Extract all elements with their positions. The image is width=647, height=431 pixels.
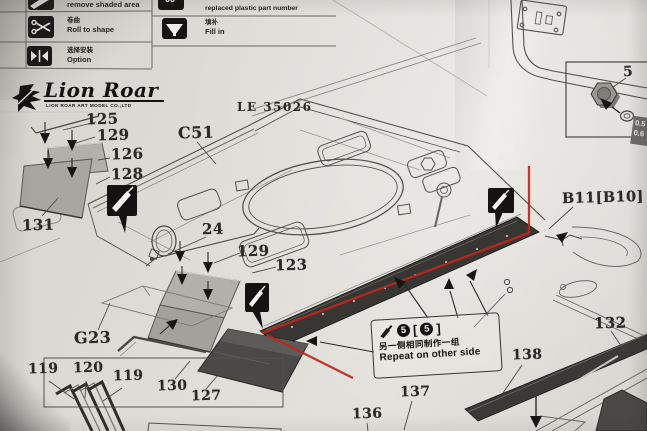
brand-rule bbox=[44, 100, 164, 102]
legend-row-remove-shaded: remove shaded area bbox=[67, 0, 140, 9]
turret-ring bbox=[235, 149, 410, 245]
option-arrows-icon bbox=[27, 46, 52, 66]
legend-en: replaced plastic part number bbox=[205, 5, 298, 12]
shaded-area-icon bbox=[28, 0, 54, 10]
part-label-c51: C51 bbox=[178, 123, 215, 143]
legend-row-replaced-number: replaced plastic part number bbox=[205, 0, 300, 16]
fill-in-icon bbox=[162, 18, 187, 39]
quantity-badge: 5 bbox=[397, 324, 411, 338]
legend-en: Roll to shape bbox=[67, 25, 114, 34]
scissors-icon bbox=[28, 16, 54, 38]
lion-roar-logo-icon bbox=[12, 84, 41, 112]
part-label-127: 127 bbox=[191, 388, 222, 405]
legend-en: remove shaded area bbox=[67, 0, 140, 9]
part-label-137: 137 bbox=[400, 384, 431, 401]
part-label-g23: G23 bbox=[74, 328, 112, 348]
sheet-code: LE 35026 bbox=[237, 100, 313, 114]
part-label-24: 24 bbox=[202, 220, 224, 239]
legend-row-fill-in: 填补 Fill in bbox=[205, 19, 225, 37]
part-label-132: 132 bbox=[594, 314, 627, 333]
legend-zh: 填补 bbox=[205, 19, 225, 27]
part-label-123: 123 bbox=[275, 256, 308, 275]
part-label-129b: 129 bbox=[237, 242, 270, 261]
part-label-5: 5 bbox=[623, 64, 634, 80]
part-label-119b: 119 bbox=[113, 368, 144, 385]
drill-size-badge: 0.5 0.6 bbox=[630, 116, 647, 146]
instruction-sheet-photo: remove shaded area 卷曲 Roll to shape 选择安装… bbox=[0, 0, 647, 431]
part-label-128: 128 bbox=[111, 165, 144, 184]
legend-en: Option bbox=[67, 55, 93, 64]
brand-subtitle: LION ROAR ART MODEL CO.,LTD bbox=[46, 103, 132, 108]
part-label-131: 131 bbox=[22, 216, 55, 235]
part-label-130: 130 bbox=[157, 378, 188, 395]
glue-icon bbox=[378, 323, 395, 340]
part-label-120: 120 bbox=[73, 360, 104, 377]
part-label-136: 136 bbox=[352, 406, 383, 423]
legend-zh: 选择安装 bbox=[67, 47, 93, 55]
drill-size-2: 0.6 bbox=[633, 128, 647, 140]
quantity-badge-alt: 5 bbox=[420, 322, 434, 336]
glue-callout-1 bbox=[107, 185, 137, 233]
legend-en: Fill in bbox=[205, 27, 225, 36]
legend-row-option: 选择安装 Option bbox=[67, 47, 93, 65]
replaced-number-glyph: 66 bbox=[165, 0, 175, 4]
part-label-b11: B11[B10] bbox=[562, 188, 644, 207]
glue-callout-2 bbox=[245, 283, 269, 329]
part-label-126: 126 bbox=[111, 145, 144, 164]
repeat-note-box: 5 [ 5 ] 另一侧相同制作一组 Repeat on other side bbox=[370, 312, 502, 379]
brand-name: Lion Roar bbox=[44, 78, 158, 102]
bracket: ] bbox=[436, 321, 441, 336]
legend-row-roll-to-shape: 卷曲 Roll to shape bbox=[67, 17, 114, 35]
part-label-129a: 129 bbox=[97, 126, 130, 145]
legend-zh: 卷曲 bbox=[67, 17, 114, 25]
bracket-part-drawing bbox=[511, 0, 647, 99]
part-label-119a: 119 bbox=[28, 361, 59, 378]
bracket: [ bbox=[413, 322, 418, 337]
part-label-138: 138 bbox=[512, 347, 543, 364]
